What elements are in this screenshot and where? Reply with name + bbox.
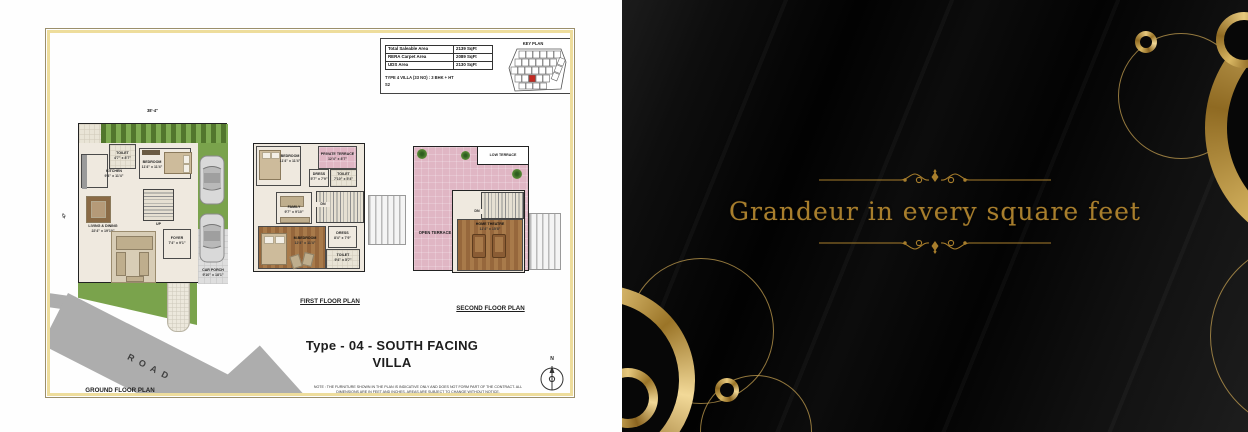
sofa (139, 252, 149, 276)
first-floor-plan: BEDROOM 11'4" x 11'4" PRIVATE TERRACE 12… (250, 125, 410, 290)
gold-ring-hole (720, 383, 734, 397)
toilet-label: TOILET 4'7" x 8'7" (110, 151, 135, 160)
second-plan-label: SECOND FLOOR PLAN (428, 305, 553, 313)
carporch-label: CAR PORCH 9'10" x 18'1" (197, 268, 229, 277)
entry-patio (79, 124, 101, 143)
sofa-set (111, 231, 156, 283)
gold-ring-hole (1224, 20, 1248, 60)
dress-label: DRESS 8'4" x 7'9" (329, 231, 356, 240)
pillow (183, 164, 190, 173)
brochure-spread: Total Saleable Area 2139 SqFt RERA Carpe… (0, 0, 1248, 432)
gold-ring-hole (1140, 36, 1152, 48)
plant-icon (417, 149, 427, 159)
staircase (481, 192, 524, 219)
area-row-label: Total Saleable Area (386, 46, 454, 54)
stairs-label: DN (316, 202, 330, 207)
toilet-label: TOILET 9'4" x 5'7" (328, 253, 358, 262)
tv-unit (126, 276, 144, 282)
family-label: FAMILY 9'7" x 9'10" (280, 205, 308, 214)
pillow (264, 236, 274, 244)
first-house: BEDROOM 11'4" x 11'4" PRIVATE TERRACE 12… (253, 143, 365, 272)
gold-ring-hole (622, 377, 649, 419)
plant-icon (461, 151, 470, 160)
page-content: Total Saleable Area 2139 SqFt RERA Carpe… (49, 32, 571, 394)
kitchen-counter (82, 155, 87, 189)
highlighted-plot (529, 75, 536, 82)
pergola (368, 195, 406, 245)
dress-label: DRESS 5'7" x 7'9" (309, 172, 329, 181)
floorplan-page: Total Saleable Area 2139 SqFt RERA Carpe… (0, 0, 622, 432)
pillow (183, 155, 190, 164)
info-box: Total Saleable Area 2139 SqFt RERA Carpe… (380, 38, 571, 94)
open-terrace-label: OPEN TERRACE (415, 230, 455, 235)
second-floor-plan: LOW TERRACE OPEN TERRACE DN HOME THEATRE… (413, 138, 565, 303)
table-top (91, 201, 106, 218)
ground-house: KITCHEN 9'4" x 11'4" TOILET 4'7" x 8'7" (78, 123, 227, 283)
compass-icon (538, 363, 566, 393)
villa-type-note: TYPE 4 VILLA (33 NO) : 3 BHK + HT (385, 75, 515, 80)
tagline-block: Grandeur in every square feet (622, 168, 1248, 255)
recliner-seat (472, 234, 486, 258)
sofa (116, 252, 126, 276)
low-terrace-label: LOW TERRACE (479, 153, 527, 158)
bed (261, 233, 287, 265)
garden-strip-top (101, 124, 228, 143)
home-theatre-label: HOME THEATRE 11'4" x 15'8" (461, 222, 519, 231)
page-title: Type - 04 - SOUTH FACING VILLA (292, 338, 492, 372)
bedroom-label: BEDROOM 11'4" x 11'4" (139, 160, 165, 169)
luxury-panel: Grandeur in every square feet (622, 0, 1248, 432)
second-house: DN HOME THEATRE 11'4" x 15'8" (452, 190, 525, 273)
area-row-value: 2130 SqFt (454, 61, 493, 69)
area-row-label: UDS Area (386, 61, 454, 69)
recliner-seat (492, 234, 506, 258)
gold-ring (715, 378, 739, 402)
chair (289, 254, 303, 269)
room-bedroom (256, 146, 301, 186)
stairs-label: DN (471, 209, 483, 214)
area-row-label: RERA Carpet Area (386, 53, 454, 61)
dimension-top: 38'-4" (78, 108, 227, 113)
dining-table (86, 196, 111, 223)
toilet-label: TOILET 7'10" x 5'4" (331, 172, 356, 181)
kitchen-label: KITCHEN 9'4" x 11'4" (99, 169, 129, 178)
key-plan-label: KEY PLAN (501, 41, 565, 46)
car-icon (199, 154, 225, 206)
villa-type-note-2: S2 (385, 82, 425, 87)
pillow (262, 152, 271, 159)
wardrobe (142, 150, 160, 155)
bed (164, 152, 192, 174)
tagline-text: Grandeur in every square feet (729, 197, 1141, 226)
road-label: ROAD (53, 314, 249, 394)
master-bedroom-label: M.BEDROOM 12'4" x 11'4" (286, 236, 324, 245)
stairs-label: UP (143, 222, 174, 227)
first-plan-label: FIRST FLOOR PLAN (270, 298, 390, 306)
sofa (116, 236, 153, 250)
staircase (143, 189, 174, 221)
compass: N (535, 356, 569, 394)
bedroom-label: BEDROOM 11'4" x 11'4" (278, 154, 302, 163)
staircase (316, 191, 364, 223)
ground-floor-plan: ROAD 38'-4" 47' (60, 105, 265, 394)
pergola (529, 213, 561, 270)
pillow (275, 236, 285, 244)
key-plan-map (503, 48, 567, 92)
foyer-label: FOYER 7'4" x 9'1" (164, 236, 190, 245)
room-master-bedroom (258, 226, 326, 269)
area-row-value: 2089 SqFt (454, 53, 493, 61)
chair (302, 252, 315, 267)
area-table: Total Saleable Area 2139 SqFt RERA Carpe… (385, 45, 493, 70)
ground-plan-label: GROUND FLOOR PLAN (65, 387, 175, 394)
plant-icon (512, 169, 522, 179)
dimension-left: 47' (61, 210, 66, 222)
car-icon (199, 212, 225, 264)
private-terrace-label: PRIVATE TERRACE 12'4" x 8'7" (319, 152, 356, 161)
flourish-ornament-icon (815, 168, 1055, 192)
flourish-ornament-icon (815, 231, 1055, 255)
tv-unit (280, 217, 310, 223)
area-row-value: 2139 SqFt (454, 46, 493, 54)
gold-ring (1135, 31, 1157, 53)
disclaimer-text: NOTE : THE FURNITURE SHOWN IN THE PLAN I… (313, 385, 523, 394)
